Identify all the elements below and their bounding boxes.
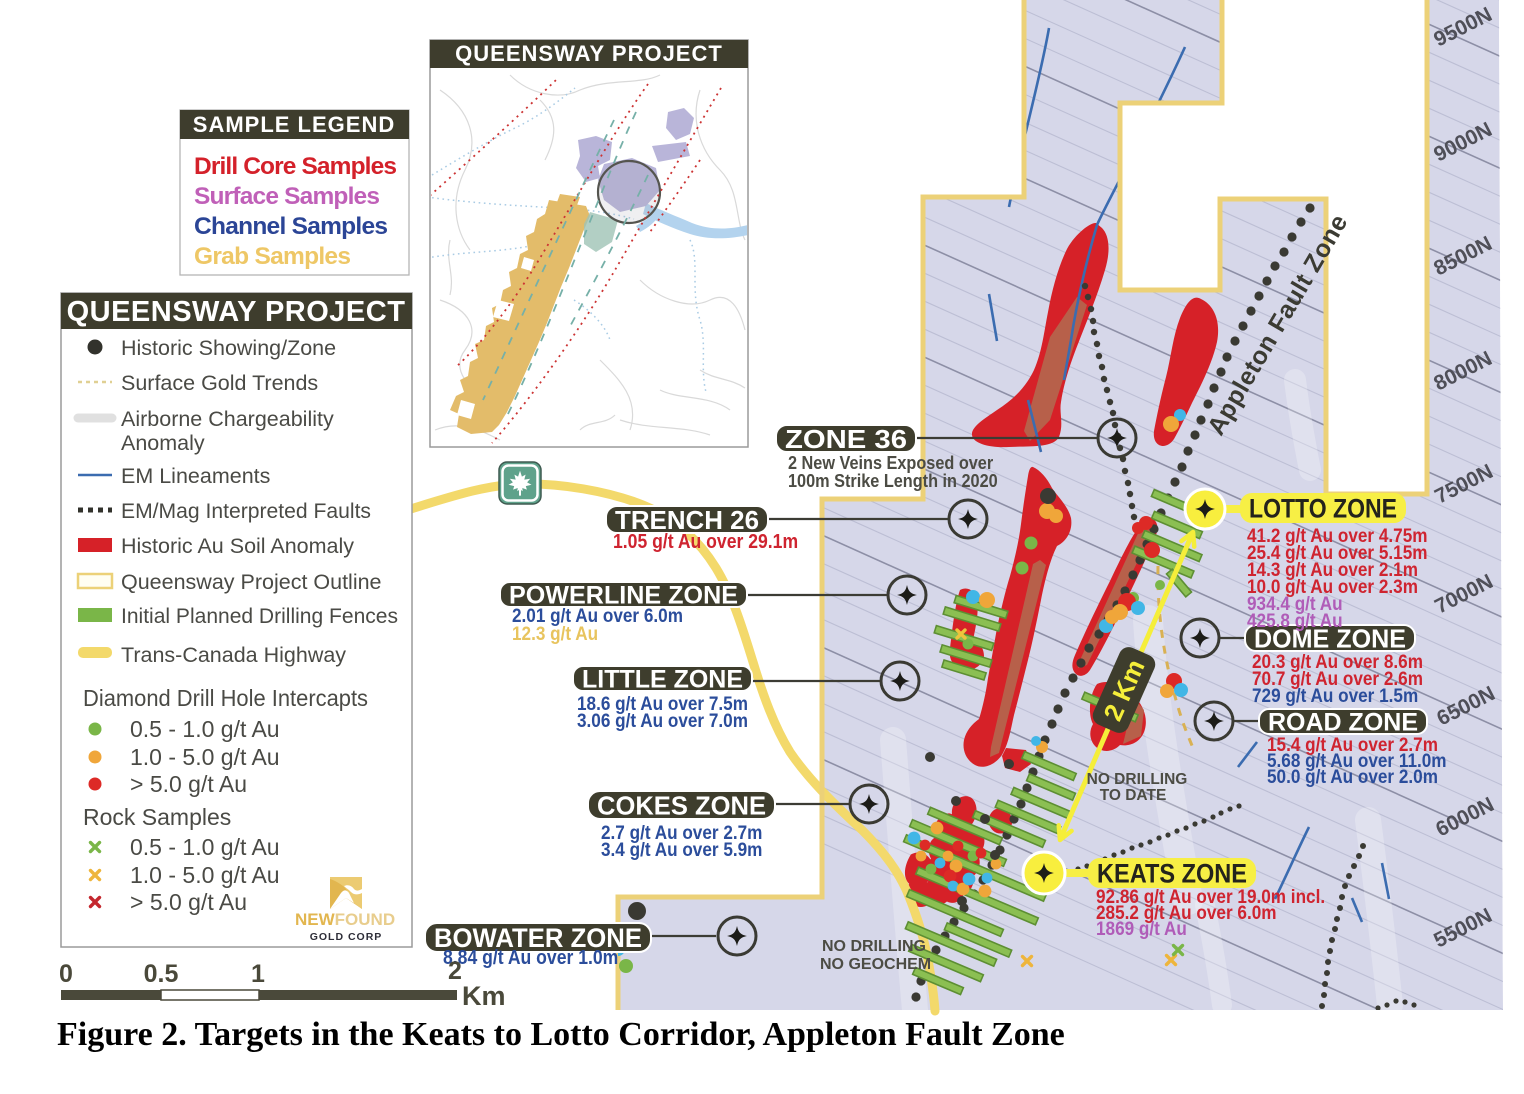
svg-text:Historic Au Soil Anomaly: Historic Au Soil Anomaly xyxy=(121,534,354,558)
svg-text:Airborne Chargeability: Airborne Chargeability xyxy=(121,407,334,431)
svg-text:NO GEOCHEM: NO GEOCHEM xyxy=(820,956,931,973)
svg-text:2: 2 xyxy=(448,957,462,985)
svg-text:1869 g/t Au: 1869 g/t Au xyxy=(1096,917,1187,939)
svg-text:LOTTO ZONE: LOTTO ZONE xyxy=(1249,494,1397,524)
svg-text:LITTLE ZONE: LITTLE ZONE xyxy=(582,666,743,694)
svg-text:Queensway Project Outline: Queensway Project Outline xyxy=(121,570,382,594)
svg-text:Historic Showing/Zone: Historic Showing/Zone xyxy=(121,336,336,360)
svg-text:Surface Samples: Surface Samples xyxy=(194,183,380,210)
svg-text:3.4 g/t Au over 5.9m: 3.4 g/t Au over 5.9m xyxy=(601,838,762,860)
svg-text:ZONE 36: ZONE 36 xyxy=(785,424,907,454)
svg-text:1.0 - 5.0 g/t Au: 1.0 - 5.0 g/t Au xyxy=(130,862,280,888)
svg-text:Km: Km xyxy=(462,981,506,1011)
svg-text:EM Lineaments: EM Lineaments xyxy=(121,464,270,488)
svg-text:Rock Samples: Rock Samples xyxy=(83,804,231,830)
svg-text:Drill Core Samples: Drill Core Samples xyxy=(194,153,397,180)
svg-text:50.0 g/t Au over 2.0m: 50.0 g/t Au over 2.0m xyxy=(1267,765,1438,787)
svg-text:GOLD CORP: GOLD CORP xyxy=(310,931,383,943)
svg-text:Diamond Drill Hole Intercapts: Diamond Drill Hole Intercapts xyxy=(83,685,368,711)
svg-text:Channel Samples: Channel Samples xyxy=(194,213,388,240)
svg-text:Grab Samples: Grab Samples xyxy=(194,243,351,270)
svg-text:> 5.0 g/t Au: > 5.0 g/t Au xyxy=(130,889,247,915)
svg-text:425.8 g/t Au: 425.8 g/t Au xyxy=(1247,609,1343,631)
svg-text:1.0 - 5.0 g/t Au: 1.0 - 5.0 g/t Au xyxy=(130,744,280,770)
svg-text:3.06 g/t Au over 7.0m: 3.06 g/t Au over 7.0m xyxy=(577,709,748,731)
svg-text:0.5 - 1.0 g/t Au: 0.5 - 1.0 g/t Au xyxy=(130,716,280,742)
svg-text:NO DRILLING: NO DRILLING xyxy=(1087,771,1188,788)
svg-text:NEWFOUND: NEWFOUND xyxy=(295,910,395,929)
svg-text:Trans-Canada Highway: Trans-Canada Highway xyxy=(121,643,346,667)
svg-text:1.05 g/t Au over 29.1m: 1.05 g/t Au over 29.1m xyxy=(613,530,798,552)
svg-text:Surface Gold Trends: Surface Gold Trends xyxy=(121,371,318,395)
svg-text:TO DATE: TO DATE xyxy=(1100,787,1167,804)
svg-text:0.5 - 1.0 g/t Au: 0.5 - 1.0 g/t Au xyxy=(130,834,280,860)
svg-text:0.5: 0.5 xyxy=(144,960,179,988)
svg-text:12.3 g/t Au: 12.3 g/t Au xyxy=(512,622,598,644)
svg-text:> 5.0 g/t Au: > 5.0 g/t Au xyxy=(130,771,247,797)
svg-text:QUEENSWAY PROJECT: QUEENSWAY PROJECT xyxy=(455,41,723,66)
svg-text:NO DRILLING: NO DRILLING xyxy=(822,938,926,955)
svg-text:Figure 2. Targets in the Keats: Figure 2. Targets in the Keats to Lotto … xyxy=(57,1016,1065,1053)
svg-text:SAMPLE LEGEND: SAMPLE LEGEND xyxy=(193,112,395,137)
svg-text:COKES ZONE: COKES ZONE xyxy=(597,790,766,820)
svg-text:Initial Planned Drilling Fence: Initial Planned Drilling Fences xyxy=(121,604,398,628)
svg-text:8.84 g/t Au over 1.0m: 8.84 g/t Au over 1.0m xyxy=(443,946,618,968)
svg-text:QUEENSWAY PROJECT: QUEENSWAY PROJECT xyxy=(67,296,406,328)
svg-text:0: 0 xyxy=(59,960,73,988)
svg-text:1: 1 xyxy=(251,960,265,988)
svg-text:100m Strike Length in 2020: 100m Strike Length in 2020 xyxy=(788,470,998,491)
svg-text:729 g/t Au over 1.5m: 729 g/t Au over 1.5m xyxy=(1252,684,1418,706)
svg-text:EM/Mag Interpreted Faults: EM/Mag Interpreted Faults xyxy=(121,499,371,523)
svg-text:Anomaly: Anomaly xyxy=(121,431,205,455)
